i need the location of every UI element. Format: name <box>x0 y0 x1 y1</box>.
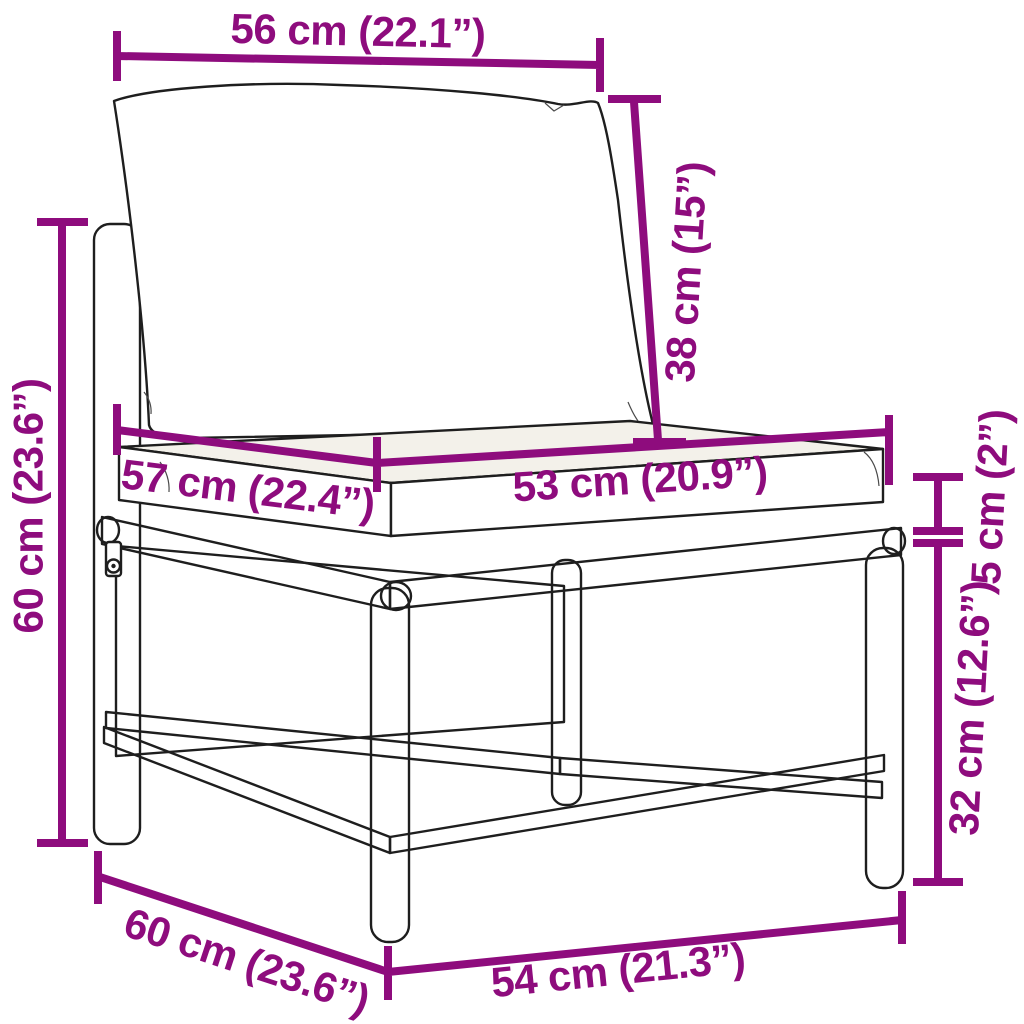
sofa-dimension-figure: 56 cm (22.1”) 38 cm (15”) 60 cm (23.6”) … <box>0 0 1024 1024</box>
back-stretcher-bar <box>106 712 560 774</box>
dim-label-overall-height: 60 cm (23.6”) <box>5 379 52 634</box>
dim-label-base-width: 54 cm (21.3”) <box>489 934 747 1007</box>
dim-label-cushion-thickness: 5 cm (2”) <box>962 408 1018 585</box>
dim-base-depth: 60 cm (23.6”) <box>98 851 388 1023</box>
dim-label-back-cushion-height: 38 cm (15”) <box>656 160 716 383</box>
dim-label-back-cushion-width: 56 cm (22.1”) <box>230 5 486 57</box>
dim-overall-height: 60 cm (23.6”) <box>5 222 89 843</box>
dim-label-seat-height: 32 cm (12.6”) <box>940 579 1000 836</box>
front-right-leg <box>866 548 903 888</box>
sofa-line-art <box>94 84 905 942</box>
dim-seat-height: 32 cm (12.6”) <box>913 543 1000 882</box>
mounting-bracket <box>106 542 121 576</box>
dim-back-cushion-width: 56 cm (22.1”) <box>117 5 600 92</box>
dimension-diagram-page: 56 cm (22.1”) 38 cm (15”) 60 cm (23.6”) … <box>0 0 1024 1024</box>
dim-base-width: 54 cm (21.3”) <box>388 891 902 1006</box>
seat-frame-rail <box>97 517 901 609</box>
front-left-leg <box>371 588 409 942</box>
rail-end-roll-left <box>97 517 119 543</box>
back-cushion <box>114 84 655 445</box>
wicker-back-panel <box>116 546 564 756</box>
back-right-leg <box>552 560 581 805</box>
dim-label-base-depth: 60 cm (23.6”) <box>119 899 376 1024</box>
front-stretcher-bar <box>390 755 884 853</box>
dim-cushion-thickness: 5 cm (2”) <box>913 408 1018 585</box>
